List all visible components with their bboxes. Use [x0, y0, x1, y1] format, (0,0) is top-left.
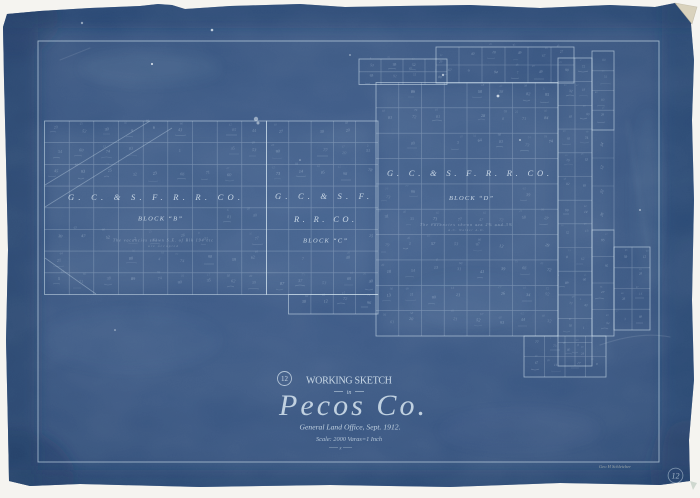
svg-text:12: 12 [499, 243, 504, 249]
svg-text:85: 85 [232, 127, 236, 132]
svg-text:80: 80 [602, 58, 606, 62]
svg-text:53: 53 [252, 147, 257, 152]
svg-text:14: 14 [584, 210, 588, 214]
svg-text:25: 25 [369, 233, 373, 238]
svg-text:52: 52 [476, 317, 481, 322]
svg-text:87: 87 [427, 234, 431, 238]
svg-text:54: 54 [58, 149, 62, 154]
svg-text:72: 72 [499, 217, 504, 222]
svg-text:BLOCK “D”: BLOCK “D” [449, 195, 493, 202]
svg-text:84: 84 [544, 115, 549, 120]
svg-text:94: 94 [494, 70, 498, 74]
svg-text:53: 53 [322, 280, 327, 285]
svg-text:79: 79 [414, 108, 418, 112]
svg-text:82: 82 [526, 91, 531, 96]
svg-text:71: 71 [522, 116, 526, 121]
svg-text:58: 58 [410, 311, 414, 315]
svg-text:79: 79 [367, 293, 371, 297]
svg-text:The vacancies shown are 2% and: The vacancies shown are 2% and 3% [420, 223, 512, 227]
svg-text:80: 80 [601, 98, 605, 102]
svg-text:95: 95 [545, 92, 549, 97]
svg-text:82: 82 [566, 182, 570, 186]
svg-text:35: 35 [410, 216, 414, 221]
svg-text:67: 67 [448, 68, 452, 72]
svg-text:1: 1 [409, 241, 411, 246]
svg-text:13: 13 [585, 229, 589, 233]
svg-text:21: 21 [456, 292, 461, 297]
svg-text:43: 43 [178, 127, 182, 132]
svg-text:72: 72 [547, 267, 552, 272]
svg-text:81: 81 [436, 114, 440, 119]
svg-text:81: 81 [227, 214, 231, 219]
svg-text:34: 34 [526, 292, 531, 297]
svg-text:83: 83 [499, 139, 504, 144]
svg-text:89: 89 [565, 281, 569, 285]
svg-text:12: 12 [672, 472, 680, 481]
svg-text:53: 53 [454, 241, 458, 246]
svg-text:BLOCK “C”: BLOCK “C” [303, 238, 347, 245]
svg-text:93: 93 [80, 168, 85, 174]
svg-text:41: 41 [480, 269, 484, 274]
svg-text:BLOCK “B”: BLOCK “B” [138, 216, 182, 223]
svg-text:Pecos Co.: Pecos Co. [278, 389, 425, 422]
svg-text:32: 32 [547, 318, 552, 324]
svg-text:62: 62 [231, 278, 236, 283]
svg-text:13: 13 [434, 265, 439, 270]
svg-text:52: 52 [82, 128, 87, 134]
svg-text:90: 90 [565, 208, 569, 212]
svg-text:67: 67 [542, 54, 546, 58]
svg-text:18: 18 [481, 83, 485, 87]
svg-text:21: 21 [519, 209, 523, 213]
svg-text:71: 71 [433, 216, 438, 221]
svg-text:61: 61 [390, 319, 395, 324]
svg-text:93: 93 [305, 294, 309, 298]
svg-text:21: 21 [56, 257, 61, 263]
svg-text:WORKING SKETCH: WORKING SKETCH [306, 376, 392, 387]
svg-text:71: 71 [205, 169, 210, 175]
svg-text:11: 11 [554, 363, 558, 367]
svg-text:74: 74 [180, 258, 184, 263]
svg-text:32: 32 [569, 89, 573, 93]
svg-text:14: 14 [639, 292, 643, 296]
svg-text:74: 74 [105, 148, 110, 154]
svg-text:93: 93 [500, 320, 505, 325]
svg-text:54: 54 [411, 268, 416, 273]
svg-text:21: 21 [453, 316, 458, 322]
svg-text:26: 26 [271, 143, 275, 147]
svg-text:98: 98 [565, 68, 569, 72]
svg-text:62: 62 [250, 254, 255, 260]
svg-text:General Land Office, Sept. 191: General Land Office, Sept. 1912. [300, 423, 401, 432]
svg-text:77: 77 [535, 340, 539, 344]
svg-text:62: 62 [581, 257, 585, 261]
svg-text:92: 92 [393, 74, 397, 78]
svg-text:52: 52 [105, 234, 110, 240]
svg-text:95: 95 [601, 238, 605, 242]
svg-text:85: 85 [320, 169, 325, 175]
svg-text:8: 8 [596, 362, 598, 366]
svg-text:44: 44 [252, 128, 256, 133]
svg-text:40: 40 [226, 166, 230, 170]
svg-text:45: 45 [54, 168, 59, 173]
svg-text:99: 99 [175, 252, 179, 256]
svg-text:5: 5 [58, 276, 60, 281]
svg-text:52: 52 [412, 63, 416, 67]
svg-text:73: 73 [276, 171, 280, 176]
svg-text:31: 31 [457, 266, 462, 271]
svg-text:71: 71 [106, 162, 110, 166]
svg-text:88: 88 [438, 75, 442, 79]
svg-text:12: 12 [281, 375, 289, 383]
svg-text:Geo H Schleicher: Geo H Schleicher [599, 464, 631, 469]
svg-text:49: 49 [381, 263, 385, 267]
svg-text:14: 14 [299, 169, 304, 174]
svg-text:73: 73 [525, 142, 530, 147]
svg-text:73: 73 [553, 344, 557, 348]
svg-text:77: 77 [385, 187, 389, 191]
svg-text:72: 72 [343, 296, 347, 301]
svg-text:92: 92 [545, 291, 550, 297]
svg-text:83: 83 [388, 115, 393, 120]
svg-text:R. R. CO.: R. R. CO. [293, 214, 354, 224]
svg-text:31: 31 [366, 148, 371, 153]
svg-text:49: 49 [539, 70, 543, 74]
svg-text:27: 27 [601, 290, 605, 294]
svg-text:A.C. Walker A.D.: A.C. Walker A.D. [447, 228, 484, 232]
svg-text:are occupied: are occupied [148, 244, 178, 248]
svg-text:73: 73 [386, 194, 391, 199]
svg-text:46: 46 [499, 84, 503, 88]
svg-text:32: 32 [132, 171, 137, 177]
svg-text:40: 40 [471, 52, 475, 56]
svg-text:49: 49 [249, 274, 253, 278]
svg-text:The vacancies shown S.E. of Bl: The vacancies shown S.E. of Blk 194 etc [113, 238, 213, 243]
svg-text:44: 44 [521, 317, 526, 322]
svg-text:72: 72 [412, 114, 417, 119]
svg-text:53: 53 [370, 63, 374, 67]
svg-text:83: 83 [129, 146, 134, 151]
svg-text:11: 11 [410, 292, 414, 297]
svg-text:Scale: 2000 Varas=1 Inch: Scale: 2000 Varas=1 Inch [316, 437, 382, 443]
